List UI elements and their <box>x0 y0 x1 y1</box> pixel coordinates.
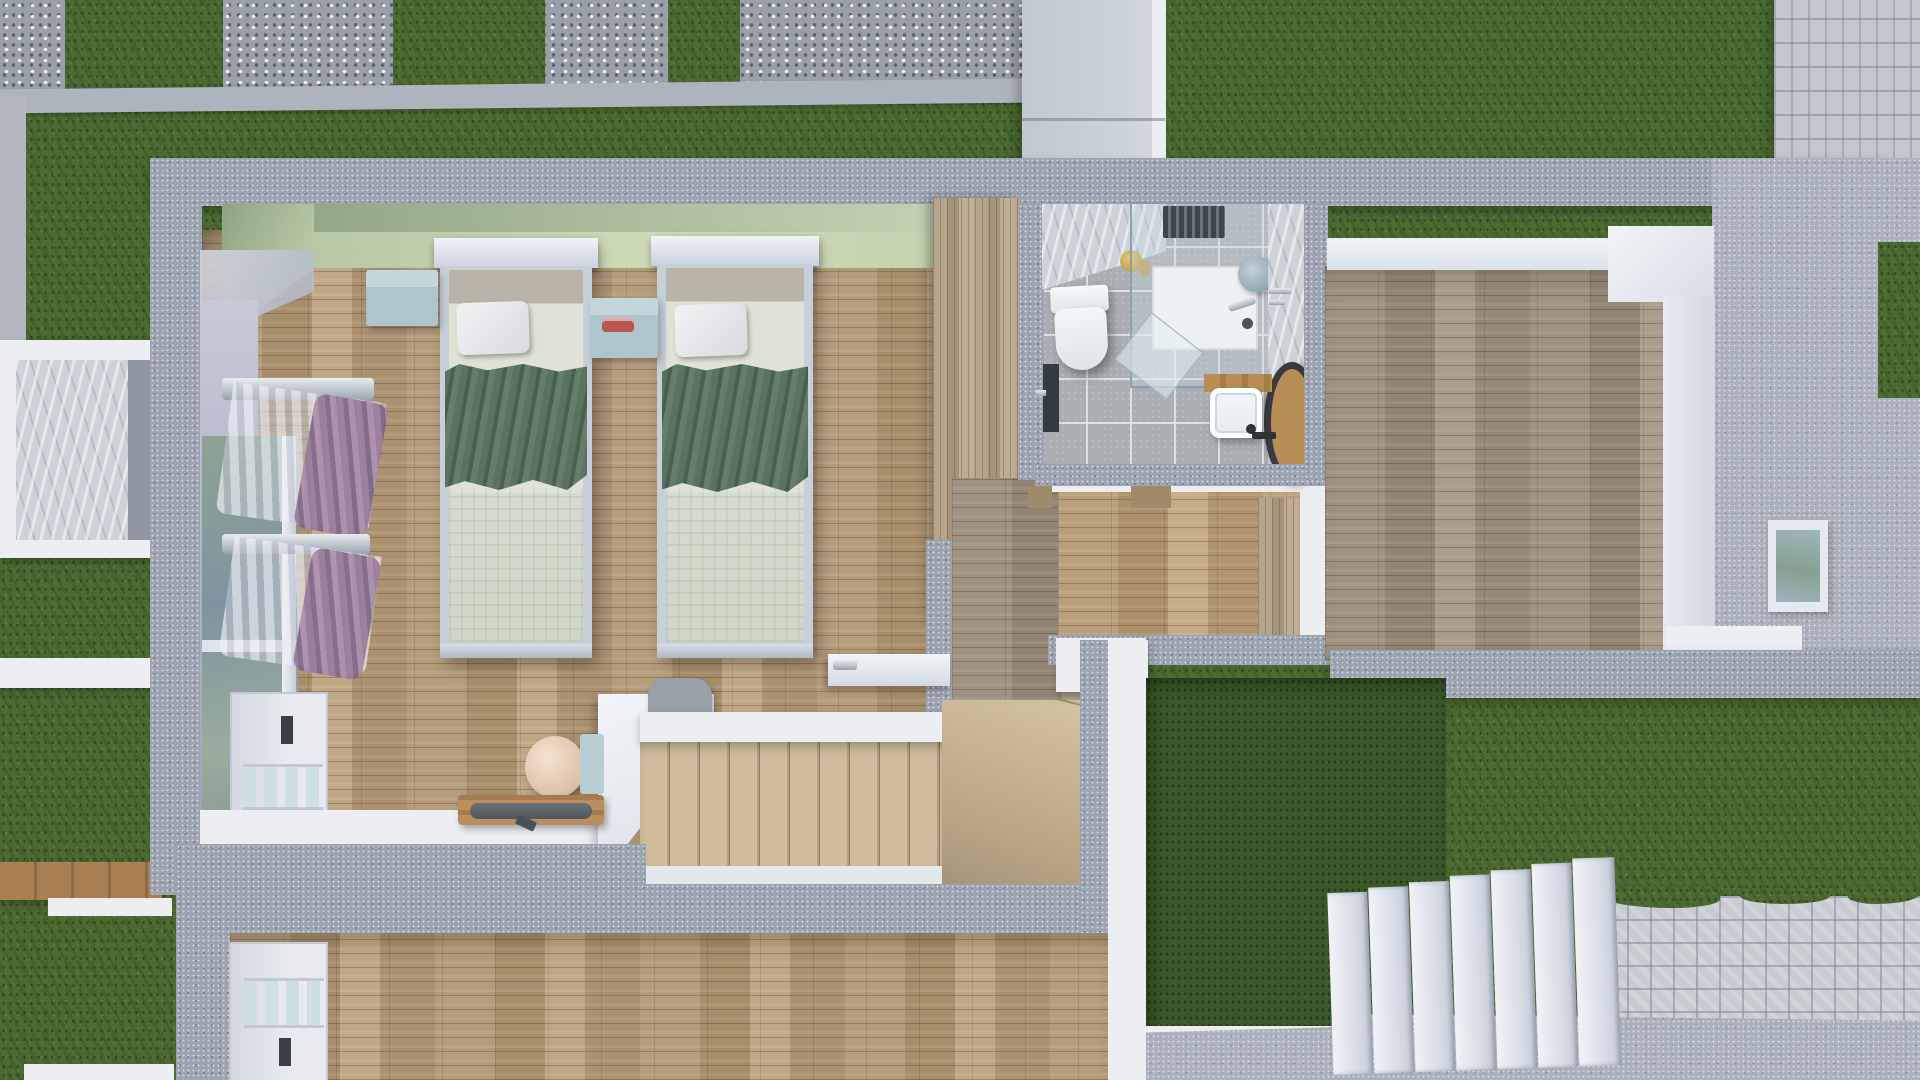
alarm-clock <box>602 318 634 332</box>
bed-canopy <box>434 238 598 268</box>
stair-stringer <box>640 866 952 886</box>
stair-straight-flight <box>640 742 942 868</box>
wood-boardwalk <box>0 862 162 900</box>
step-tread <box>1327 892 1373 1075</box>
bed-foot-bar <box>440 644 592 658</box>
closet-upper-windows <box>243 764 323 810</box>
lower-room-floor <box>230 933 1108 1080</box>
door-header-wood <box>1131 484 1171 508</box>
twin-bed-left <box>440 238 592 658</box>
door-header-wood <box>1028 486 1052 508</box>
gravel-grass-gap <box>393 0 545 92</box>
step-tread <box>1450 874 1497 1070</box>
step-tread <box>1531 863 1578 1068</box>
marble-garden-steps <box>1326 857 1623 1080</box>
courtyard-left-trim <box>1108 640 1148 1032</box>
entry-walkway-slab <box>1022 0 1165 162</box>
bed-canopy <box>651 236 819 266</box>
sage-wall-band-outer <box>310 204 933 234</box>
shower-drain-grate <box>1163 206 1225 238</box>
walkway-seam <box>1022 118 1165 121</box>
wall-wardrobe-bath <box>1018 204 1044 480</box>
stair-ledge <box>640 712 952 742</box>
blue-storage-box <box>580 734 604 794</box>
bedroom2-wall-corner <box>1608 226 1714 302</box>
divider-wall-bedroom <box>176 844 646 938</box>
closet-lower-windows <box>244 978 324 1028</box>
bedroom2-wall-band-top <box>1327 238 1615 270</box>
closet-upper-handle <box>281 716 293 744</box>
gravel-grass-gap <box>65 0 223 92</box>
dark-door-leaf <box>1043 364 1059 432</box>
planter-edge-bottom-left <box>24 1064 174 1080</box>
bed-foot-bar <box>657 644 813 658</box>
bedroom2-floor <box>1325 266 1670 660</box>
towel-bar <box>1269 288 1291 294</box>
walkway-edge <box>1152 0 1166 162</box>
bed-pillow <box>456 301 530 355</box>
dark-plate <box>470 803 592 819</box>
bed-sheet-pattern <box>666 488 804 642</box>
terrace-grass-strip <box>1878 242 1920 398</box>
bedroom2-wall-band-right <box>1663 296 1715 660</box>
toilet <box>1048 284 1114 373</box>
outer-wall-left <box>150 158 202 895</box>
bed-pillow <box>674 303 748 357</box>
sage-wall-band-inner <box>310 232 933 268</box>
floorplan-render: Top-down 3D render of an upper-floor hou… <box>0 0 1920 1080</box>
step-tread <box>1409 881 1456 1072</box>
sidewalk-strip-left <box>0 96 26 364</box>
bed-blanket <box>445 364 587 490</box>
vestibule-niche-door <box>1258 498 1304 638</box>
towel-bar <box>1269 300 1285 305</box>
table-lamp-sphere <box>525 736 585 798</box>
grass-edge-blob <box>1740 888 1830 904</box>
nightstand-left <box>366 270 438 326</box>
bathroom-bottom-wall <box>1035 464 1330 486</box>
closet-lower-handle <box>279 1038 291 1066</box>
step-tread <box>1572 857 1621 1066</box>
step-tread <box>1491 869 1538 1069</box>
bed-blanket <box>662 364 808 492</box>
shower-valve <box>1242 318 1253 329</box>
dark-door-handle <box>1036 390 1046 396</box>
step-tread <box>1368 886 1414 1073</box>
terrace-window-glass <box>1776 530 1820 602</box>
outer-wall-top <box>150 158 1890 206</box>
bed-sheet-pattern <box>449 488 583 642</box>
open-door-top <box>828 654 950 686</box>
planter-edge-left-2 <box>48 898 172 916</box>
door-handle <box>833 660 857 670</box>
vestibule-right-trim <box>1300 480 1328 640</box>
basketweave-path <box>1604 896 1920 1036</box>
courtyard-left-wall <box>1080 640 1108 942</box>
twin-bed-right <box>657 236 813 656</box>
gravel-grass-gap <box>668 0 740 92</box>
toilet-bowl <box>1054 307 1109 372</box>
sink-spout <box>1252 432 1276 439</box>
